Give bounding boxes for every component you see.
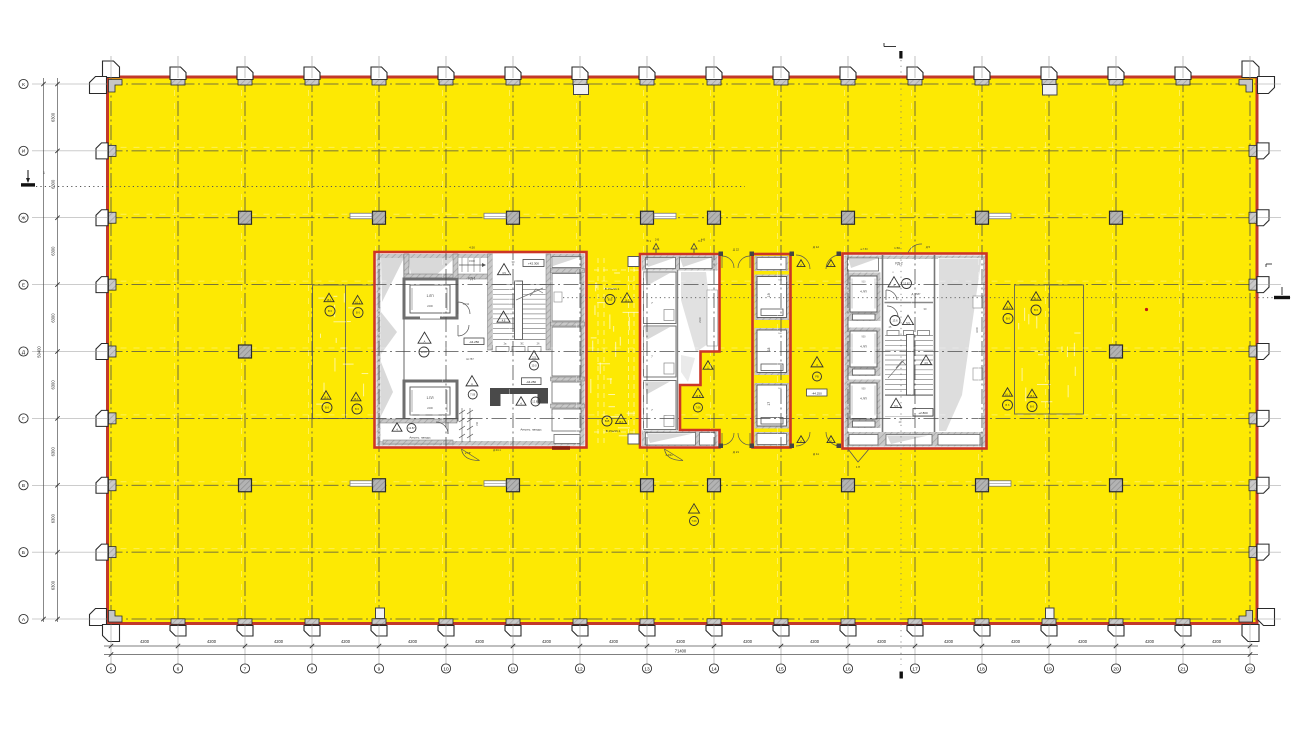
svg-text:15: 15 (778, 666, 784, 672)
svg-text:16.1: 16.1 (1005, 393, 1011, 397)
svg-text:РД-2: РД-2 (895, 262, 902, 266)
svg-text:Ш-787: Ш-787 (466, 357, 474, 361)
svg-text:Д 12: Д 12 (813, 245, 820, 249)
svg-text:7.06: 7.06 (470, 393, 476, 397)
svg-text:16.1: 16.1 (326, 298, 332, 302)
svg-text:6: 6 (177, 666, 180, 672)
svg-text:-44.250: -44.250 (812, 391, 823, 395)
svg-text:21: 21 (1180, 666, 1186, 672)
svg-text:13.6: 13.6 (892, 319, 898, 323)
svg-text:В15: В15 (608, 298, 613, 302)
svg-text:1500: 1500 (469, 259, 475, 263)
svg-text:2.5: 2.5 (532, 356, 536, 360)
svg-text:1.ПЛ: 1.ПЛ (426, 396, 433, 400)
svg-text:20: 20 (1113, 666, 1119, 672)
svg-text:5.5: 5.5 (894, 404, 898, 408)
svg-text:12: 12 (577, 666, 583, 672)
svg-text:4.6: 4.6 (502, 318, 506, 322)
svg-text:13: 13 (644, 666, 650, 672)
svg-text:16.1: 16.1 (1033, 297, 1039, 301)
svg-text:16.1: 16.1 (355, 300, 361, 304)
svg-text:Б: Б (22, 550, 25, 556)
svg-text:9: 9 (378, 666, 381, 672)
svg-text:12.87: 12.87 (532, 400, 539, 404)
svg-text:4200: 4200 (1212, 639, 1222, 644)
svg-text:В 6: В 6 (355, 407, 359, 411)
svg-text:5.5: 5.5 (906, 321, 910, 325)
svg-text:4.ЛП: 4.ЛП (860, 290, 867, 294)
svg-text:Д 22: Д 22 (733, 248, 740, 252)
svg-text:16.1: 16.1 (323, 396, 329, 400)
svg-text:В 6: В 6 (1006, 403, 1010, 407)
svg-text:Д. 0587: Д. 0587 (912, 292, 922, 296)
svg-text:4-Б: 4-Б (701, 238, 705, 242)
svg-text:2300: 2300 (698, 317, 702, 323)
svg-text:А: А (424, 339, 426, 343)
svg-text:4200: 4200 (676, 639, 686, 644)
svg-text:4200: 4200 (1078, 639, 1088, 644)
svg-text:16.1: 16.1 (624, 298, 630, 302)
svg-text:Ж: Ж (21, 216, 26, 222)
svg-text:РВ: РВ (815, 375, 819, 379)
svg-text:5: 5 (110, 666, 113, 672)
svg-text:900: 900 (862, 336, 867, 339)
svg-text:А: А (471, 382, 473, 386)
svg-text:В 6: В 6 (328, 309, 332, 313)
svg-text:+42.300: +42.300 (528, 262, 539, 266)
svg-text:-44.250: -44.250 (526, 380, 537, 384)
svg-text:4200: 4200 (274, 639, 284, 644)
svg-text:11: 11 (511, 666, 516, 672)
svg-text:6300: 6300 (51, 513, 56, 523)
svg-text:4.15х: 4.15х (665, 453, 673, 457)
svg-text:В.15а/16.1: В.15а/16.1 (605, 287, 620, 291)
svg-text:4200: 4200 (341, 639, 351, 644)
svg-text:Г: Г (22, 416, 25, 422)
svg-text:В 6: В 6 (1034, 308, 1038, 312)
svg-text:1.50: 1.50 (894, 246, 900, 250)
svg-text:16.1: 16.1 (1005, 306, 1011, 310)
svg-text:17: 17 (912, 666, 918, 672)
svg-text:Е: Е (22, 282, 25, 288)
svg-text:3.5: 3.5 (502, 271, 506, 275)
svg-text:И: И (22, 149, 26, 155)
svg-text:Л 1: Л 1 (647, 239, 652, 243)
svg-text:19: 19 (1046, 666, 1052, 672)
svg-text:150: 150 (476, 421, 479, 426)
svg-text:16.1: 16.1 (618, 420, 624, 424)
svg-text:10: 10 (443, 666, 449, 672)
svg-text:14: 14 (711, 666, 717, 672)
svg-text:1 П: 1 П (856, 465, 860, 469)
svg-text:4200: 4200 (810, 639, 820, 644)
svg-text:4.ЛП: 4.ЛП (860, 397, 867, 401)
svg-text:2-Б: 2-Б (655, 238, 659, 242)
svg-text:4200: 4200 (475, 639, 485, 644)
svg-text:8: 8 (311, 666, 314, 672)
svg-text:4200: 4200 (1011, 639, 1021, 644)
svg-text:В 6: В 6 (356, 311, 360, 315)
svg-text:Д 21: Д 21 (733, 450, 740, 454)
svg-text:4200: 4200 (877, 639, 887, 644)
svg-text:4.50: 4.50 (469, 246, 475, 250)
svg-text:6300: 6300 (51, 380, 56, 390)
svg-text:РД-1: РД-1 (468, 277, 475, 281)
svg-text:14 В: 14 В (695, 394, 701, 398)
svg-text:6300: 6300 (51, 246, 56, 256)
svg-text:В: В (22, 483, 25, 489)
svg-text:6300: 6300 (51, 313, 56, 323)
svg-text:Антрес. пандус: Антрес. пандус (520, 428, 542, 432)
svg-text:Д 5: Д 5 (926, 245, 931, 249)
svg-text:7: 7 (244, 666, 247, 672)
svg-text:+2.800: +2.800 (918, 411, 928, 415)
svg-text:Д 11: Д 11 (813, 452, 819, 456)
svg-text:7.06: 7.06 (691, 519, 697, 523)
svg-text:2400: 2400 (427, 406, 433, 410)
svg-text:4200: 4200 (408, 639, 418, 644)
svg-text:1: 1 (43, 171, 45, 175)
svg-text:В15: В15 (605, 419, 610, 423)
svg-text:900: 900 (862, 388, 867, 391)
svg-text:22: 22 (1247, 666, 1253, 672)
svg-text:71400: 71400 (675, 648, 687, 653)
svg-text:12.87: 12.87 (421, 350, 428, 354)
svg-text:1.ЛП: 1.ЛП (426, 294, 434, 298)
svg-text:ЭС: ЭС (520, 343, 524, 346)
svg-text:6300: 6300 (51, 179, 56, 189)
svg-text:4200: 4200 (207, 639, 217, 644)
svg-text:Антрес. пандус: Антрес. пандус (409, 436, 431, 440)
svg-text:50400: 50400 (37, 346, 42, 358)
svg-text:4200: 4200 (140, 639, 150, 644)
svg-text:10.0: 10.0 (531, 364, 537, 368)
svg-text:6300: 6300 (51, 447, 56, 457)
svg-text:17: 17 (767, 402, 771, 406)
svg-text:18: 18 (767, 348, 771, 352)
svg-text:16.1: 16.1 (1029, 394, 1035, 398)
svg-text:6300: 6300 (51, 112, 56, 122)
svg-text:В.15а/16.1: В.15а/16.1 (606, 429, 621, 433)
svg-text:12.87: 12.87 (408, 426, 415, 430)
svg-text:7.06: 7.06 (695, 406, 701, 410)
svg-text:4200: 4200 (542, 639, 552, 644)
svg-text:4200: 4200 (609, 639, 619, 644)
svg-text:4.6: 4.6 (924, 361, 928, 365)
svg-text:4200: 4200 (743, 639, 753, 644)
svg-text:2400: 2400 (427, 304, 433, 308)
svg-text:В 6: В 6 (1030, 405, 1034, 409)
svg-text:К: К (22, 82, 25, 88)
svg-text:В 6: В 6 (325, 406, 329, 410)
svg-text:6300: 6300 (51, 580, 56, 590)
svg-text:4200: 4200 (1145, 639, 1155, 644)
svg-text:19: 19 (767, 293, 771, 297)
svg-text:16: 16 (845, 666, 851, 672)
svg-text:16.1: 16.1 (353, 397, 359, 401)
svg-text:ОУ42: ОУ42 (463, 302, 470, 306)
svg-text:18: 18 (979, 666, 985, 672)
svg-text:4200: 4200 (944, 639, 954, 644)
svg-text:-44.250: -44.250 (469, 340, 480, 344)
svg-text:а-7.50: а-7.50 (860, 247, 868, 251)
svg-text:В 6: В 6 (1006, 317, 1010, 321)
